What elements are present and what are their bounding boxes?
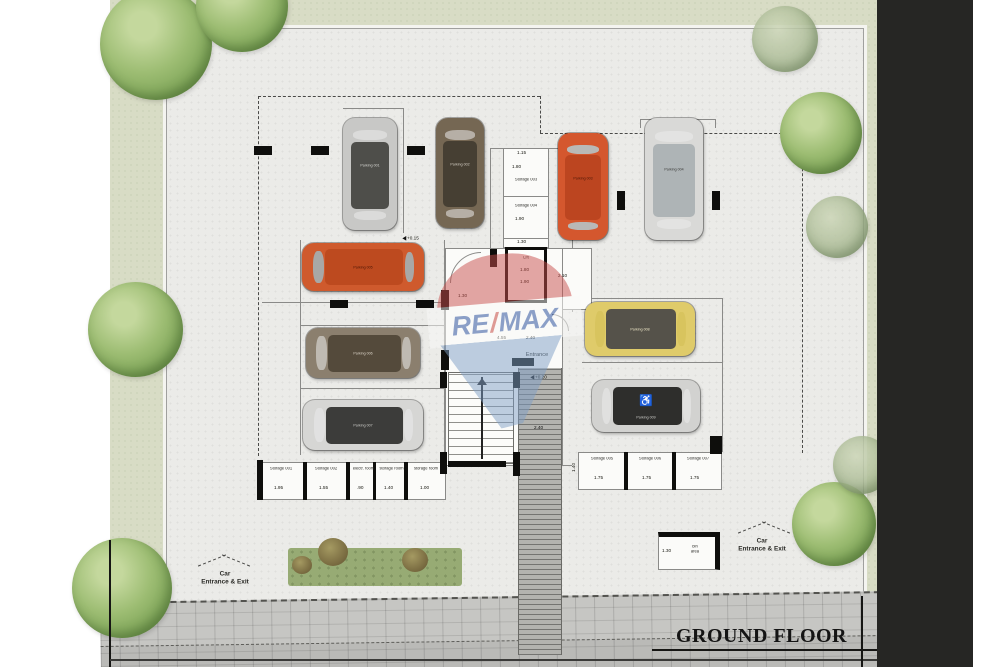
wall-column: [513, 452, 520, 476]
parking-bay-line: [715, 119, 716, 128]
stair-rail: [481, 377, 483, 459]
lift-shaft: Lift 1.80 1.90: [505, 247, 547, 303]
bush: [402, 548, 428, 572]
parked-car: Parking 006: [306, 328, 420, 378]
wall-column: [404, 462, 408, 500]
wall-column: [513, 372, 520, 388]
windshield: [353, 130, 388, 140]
car-entrance-right-label: CarEntrance & Exit: [725, 538, 799, 554]
parking-space-label: Parking 006: [329, 352, 397, 356]
parked-car: Parking 004: [645, 118, 703, 240]
parked-car: Parking 003: [558, 133, 608, 240]
parking-space-label: Parking 004: [657, 168, 692, 172]
rear-window: [568, 222, 598, 231]
rear-window: [404, 409, 414, 441]
parked-car: Parking 005: [302, 243, 424, 291]
dimension-label: 1.30: [662, 549, 671, 554]
room-label: storage room: [379, 467, 398, 472]
tree: [72, 538, 172, 638]
car-roof: [351, 142, 390, 209]
parking-bay-line: [640, 119, 641, 128]
rear-window: [657, 219, 692, 229]
wall-column: [330, 300, 348, 308]
windshield: [445, 130, 476, 140]
dimension-label: 1.30: [517, 240, 526, 245]
dimension-label: 4.55: [497, 336, 506, 341]
parked-car: Parking 001: [343, 118, 397, 230]
car-roof: [653, 144, 695, 217]
wall-column: [254, 146, 272, 155]
dimension-label: 1.40: [384, 486, 393, 491]
dimension-label: 1.75: [690, 476, 699, 481]
wall-column: [303, 462, 307, 500]
wall-column: [257, 460, 263, 500]
dimension-label: 1.55: [319, 486, 328, 491]
parking-space-label: Parking 002: [446, 163, 475, 167]
dimension-label: 1.75: [642, 476, 651, 481]
dimension-label: 1.90: [520, 280, 529, 285]
entrance-arrow-icon: [740, 520, 788, 536]
dimension-label: 2.10: [558, 274, 567, 279]
room-divider: [503, 196, 549, 197]
parking-space-label: Parking 001: [354, 164, 386, 168]
stair-up-arrow-icon: [477, 373, 487, 385]
parking-space-label: Parking 005: [326, 266, 399, 270]
car-entrance-left-label: CarEntrance & Exit: [188, 571, 262, 587]
room-label: electr. room: [353, 467, 369, 472]
dimension-label: 1.30: [458, 294, 467, 299]
rear-window: [405, 252, 415, 283]
room-label: Storage 004: [512, 204, 541, 209]
wall-column: [672, 452, 676, 490]
bin-area-label: binarea: [685, 545, 705, 554]
room-label: Storage 001: [266, 467, 296, 472]
wall-column: [512, 358, 534, 366]
pedestrian-walkway: [518, 368, 562, 655]
room-label: Storage 002: [312, 467, 339, 472]
parking-bay-line: [582, 362, 722, 363]
windshield: [655, 131, 692, 142]
wall-column: [490, 249, 497, 267]
parking-space-label: Parking 008: [607, 328, 673, 332]
dimension-label: 1.95: [274, 486, 283, 491]
wall-column: [710, 436, 722, 454]
wall-column: [440, 372, 447, 388]
level-marker: +0.15: [400, 236, 419, 241]
parking-space-label: Parking 009: [614, 417, 679, 421]
room-label: Storage 006: [636, 457, 665, 462]
wall-column: [440, 452, 447, 474]
tree: [780, 92, 862, 174]
parking-bay-line: [300, 388, 445, 389]
core-storage-rooms: [503, 148, 549, 248]
rear-window: [446, 209, 475, 218]
parked-car: Parking 007: [303, 400, 423, 450]
windshield: [313, 251, 324, 284]
dimension-label: 1.40: [572, 463, 577, 472]
dimension-label: 1.15: [517, 151, 526, 156]
plan-border-line: [109, 540, 111, 667]
wall-column: [448, 461, 506, 467]
lift-label: Lift: [514, 256, 538, 261]
tree: [752, 6, 818, 72]
wheelchair-icon: ♿: [592, 394, 700, 407]
room-label: Storage 003: [512, 178, 541, 183]
room-label: storage room: [414, 467, 438, 472]
setback-dashed-line: [540, 96, 541, 133]
dimension-label: 2.40: [526, 336, 535, 341]
room-divider: [503, 238, 549, 239]
wall-column: [346, 462, 350, 500]
tree: [806, 196, 868, 258]
rear-window: [677, 312, 686, 347]
dimension-label: 1.00: [420, 486, 429, 491]
plan-border-line: [110, 659, 877, 661]
floor-plan-canvas: 1.15 1.80 Storage 003 Storage 004 1.90 1…: [0, 0, 1000, 667]
wall-column: [416, 300, 434, 308]
title-underline: [652, 649, 877, 651]
windshield: [567, 145, 599, 155]
wall-column: [624, 452, 628, 490]
dimension-label: .90: [357, 486, 364, 491]
wall-column: [407, 146, 425, 155]
parking-bay-line: [300, 325, 445, 326]
dimension-label: 1.90: [515, 217, 524, 222]
level-marker: +0.20: [528, 375, 547, 380]
dimension-label: 2.40: [534, 426, 543, 431]
parking-bay-line: [343, 108, 404, 109]
windshield: [595, 311, 605, 348]
wall-column: [441, 350, 449, 370]
wall-column: [311, 146, 329, 155]
dimension-label: 1.75: [594, 476, 603, 481]
windshield: [316, 336, 326, 370]
setback-dashed-line: [258, 96, 540, 97]
dimension-label: 1.80: [512, 165, 521, 170]
parking-bay-line: [403, 108, 404, 233]
rear-window: [402, 337, 411, 369]
tree: [792, 482, 876, 566]
wall-column: [712, 191, 720, 210]
parking-bay-line: [722, 298, 723, 452]
core-wall-line: [490, 148, 491, 248]
room-label: Storage 005: [588, 457, 617, 462]
dimension-label: 1.80: [520, 268, 529, 273]
bush: [318, 538, 348, 566]
wall-column: [617, 191, 625, 210]
staircase: [448, 372, 514, 464]
bush: [292, 556, 312, 574]
car-roof: [565, 155, 601, 219]
parking-bay-line: [300, 240, 301, 455]
windshield: [314, 408, 325, 442]
setback-dashed-line: [802, 133, 803, 453]
page-title: GROUND FLOOR: [676, 625, 876, 648]
entrance-label: Entrance: [520, 352, 554, 358]
planting-strip: [288, 548, 462, 586]
parking-space-label: Parking 007: [327, 424, 399, 428]
parked-car: Parking 008: [585, 302, 695, 356]
dimension-label: 2.00: [680, 534, 689, 539]
entrance-arrow-icon: [200, 553, 248, 569]
room-label: Storage 007: [684, 457, 713, 462]
right-dark-margin: [877, 0, 973, 667]
parked-car: Parking 002: [436, 118, 484, 228]
rear-window: [354, 211, 386, 220]
parking-space-label: Parking 003: [568, 177, 598, 181]
wall-column: [441, 290, 449, 310]
parking-bay-line: [582, 298, 722, 299]
accessible-parked-car: ♿ Parking 009: [592, 380, 700, 432]
car-roof: [443, 141, 478, 207]
tree: [88, 282, 183, 377]
